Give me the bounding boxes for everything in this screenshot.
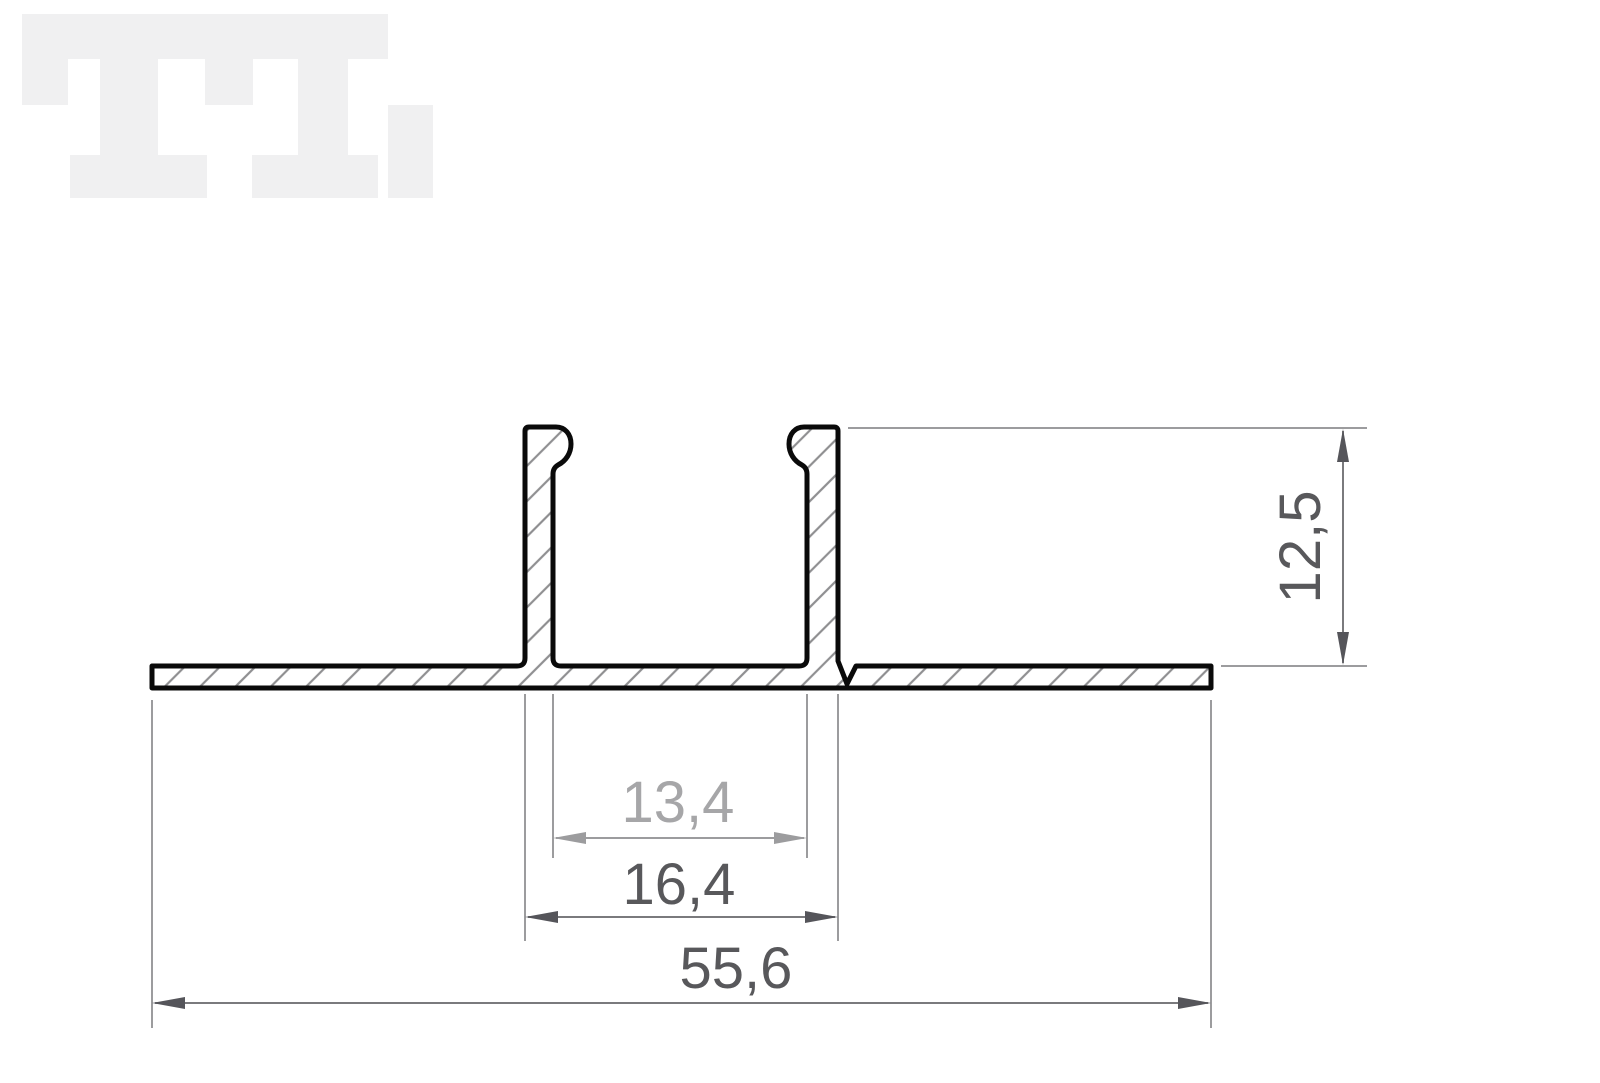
- dimension-label-inner-width: 13,4: [622, 770, 735, 835]
- arrowhead-left: [525, 911, 558, 923]
- dimension-inner-width: 13,4: [553, 770, 807, 844]
- logo-foot-2: [252, 155, 378, 198]
- arrowhead-up: [1337, 429, 1349, 462]
- arrowhead-down: [1337, 632, 1349, 665]
- dimension-label-outer-width: 16,4: [623, 852, 736, 917]
- technical-drawing: 12,5 13,4 16,4 55,6: [0, 0, 1600, 1083]
- profile-cross-section: [152, 427, 1211, 688]
- dimension-label-height: 12,5: [1268, 491, 1333, 604]
- dimension-height: 12,5: [1268, 429, 1349, 665]
- logo-stem-2: [298, 59, 348, 155]
- drawing-canvas: 12,5 13,4 16,4 55,6: [0, 0, 1600, 1083]
- arrowhead-right: [805, 911, 838, 923]
- dimension-total-width: 55,6: [152, 936, 1211, 1009]
- logo-letter-l: [388, 105, 433, 198]
- arrowhead-right: [1178, 997, 1211, 1009]
- arrowhead-left: [152, 997, 185, 1009]
- logo-serif-mid: [205, 59, 253, 105]
- logo-foot-1: [70, 155, 207, 198]
- logo-serif-left: [22, 59, 68, 105]
- dimension-outer-width: 16,4: [525, 852, 838, 923]
- arrowhead-left: [553, 832, 586, 844]
- logo-stem-1: [100, 59, 158, 155]
- logo-top-bar: [22, 14, 388, 59]
- arrowhead-right: [774, 832, 807, 844]
- watermark-logo: [22, 14, 433, 198]
- dimension-label-total-width: 55,6: [680, 936, 793, 1001]
